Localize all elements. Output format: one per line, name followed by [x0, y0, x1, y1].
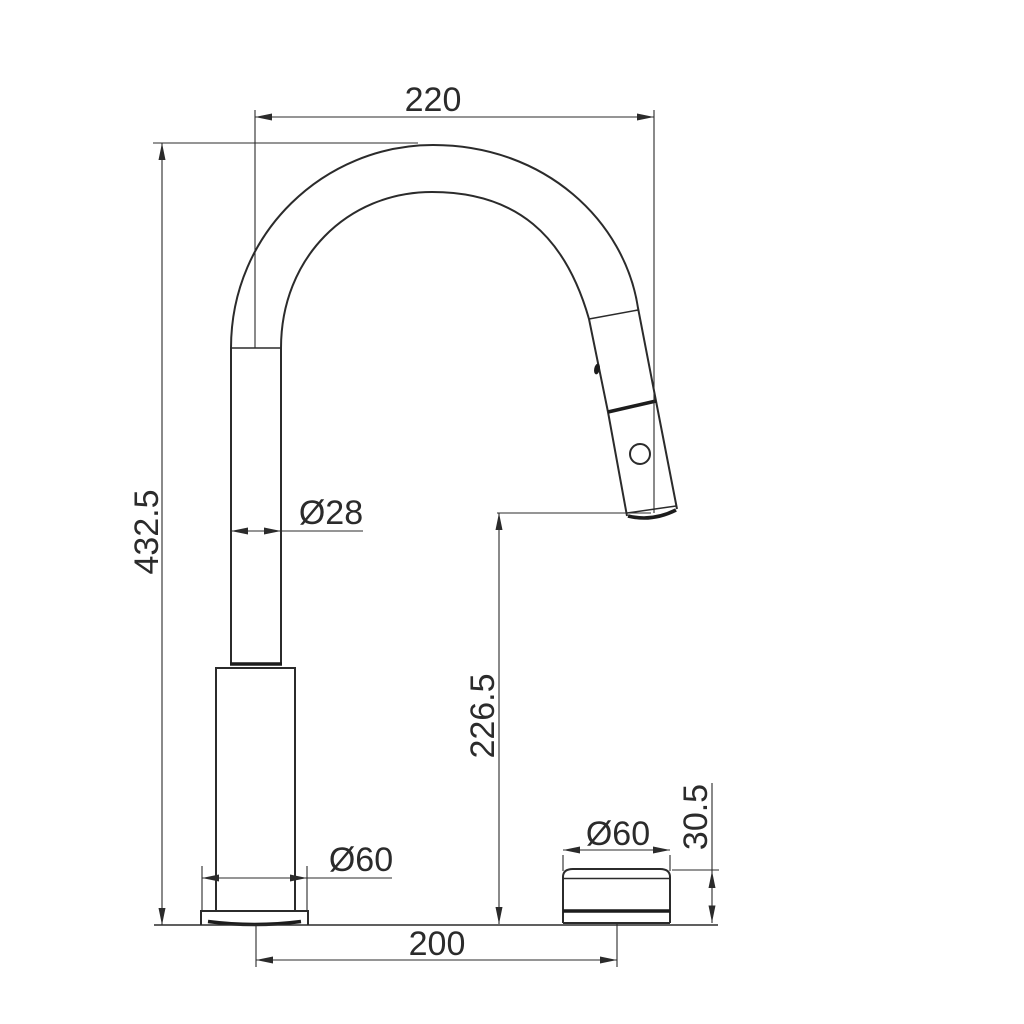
- arrowhead-left-icon: [202, 875, 219, 882]
- sprayhead-button-circle: [630, 444, 650, 464]
- arrowhead-up-icon: [159, 143, 166, 160]
- dim-handle-diameter: Ø60: [563, 815, 670, 871]
- arrowhead-left-icon: [256, 957, 273, 964]
- handle-body: [563, 869, 670, 923]
- dim-label-outlet-height: 226.5: [464, 673, 502, 758]
- dim-label-handle-height: 30.5: [677, 784, 715, 850]
- sprayhead-joint-lower: [608, 401, 656, 412]
- dim-label-handle-diameter: Ø60: [586, 815, 650, 853]
- dim-outlet-height: 226.5: [464, 513, 651, 924]
- arrowhead-left-icon: [563, 847, 580, 854]
- arrowhead-up-icon: [496, 513, 503, 530]
- dim-base-diameter: Ø60: [202, 841, 393, 911]
- arrowhead-right-icon: [637, 114, 654, 121]
- dim-handle-height: 30.5: [672, 783, 719, 923]
- arrowhead-right-icon: [600, 957, 617, 964]
- sprayhead-joint-upper: [589, 310, 638, 319]
- spout-inner-profile: [281, 192, 627, 664]
- dim-label-spout-reach: 220: [405, 81, 462, 119]
- dim-label-overall-height: 432.5: [128, 489, 166, 574]
- dim-label-centers-distance: 200: [409, 925, 466, 963]
- arrowhead-down-icon: [709, 906, 716, 923]
- arrowhead-down-icon: [159, 908, 166, 925]
- arrowhead-down-icon: [496, 907, 503, 924]
- dim-label-spout-diameter: Ø28: [299, 494, 363, 532]
- handle-knob: [563, 869, 670, 967]
- dim-overall-height: 432.5: [128, 143, 418, 925]
- faucet-technical-drawing: 220 432.5 Ø28 226.5 Ø60 200: [0, 0, 1024, 1024]
- dim-label-base-diameter: Ø60: [329, 841, 393, 879]
- arrowhead-left-icon: [231, 528, 248, 535]
- arrowhead-right-icon: [264, 528, 281, 535]
- arrowhead-up-icon: [709, 871, 716, 888]
- spout-outer-profile: [231, 145, 677, 664]
- arrowhead-right-icon: [653, 847, 670, 854]
- base-flange-band: [208, 922, 301, 925]
- arrowhead-right-icon: [290, 875, 307, 882]
- arrowhead-left-icon: [255, 114, 272, 121]
- dim-spout-diameter: Ø28: [231, 494, 363, 535]
- dim-centers-distance: 200: [256, 925, 617, 964]
- base-cylinder: [216, 668, 295, 911]
